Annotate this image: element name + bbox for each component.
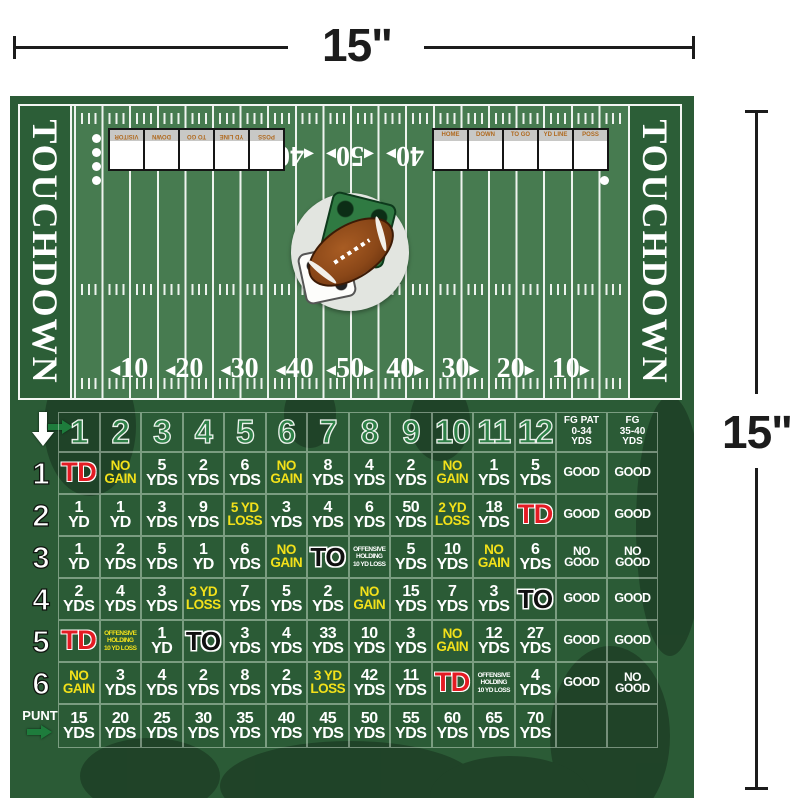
result-line: YDS: [146, 599, 177, 614]
result-line: 42: [361, 668, 378, 683]
result-line: GOOD: [563, 593, 599, 605]
result-cell: 3 YDLOSS: [183, 578, 225, 620]
result-cell: 60YDS: [432, 704, 474, 748]
dice-row-label: 6: [26, 666, 56, 702]
result-cell: 2YDS: [307, 578, 349, 620]
result-cell: 9YDS: [183, 494, 225, 536]
result-line: 8: [324, 458, 332, 473]
result-cell: NOGAIN: [266, 536, 308, 578]
result-cell: 3YDS: [141, 494, 183, 536]
result-line: YDS: [478, 515, 509, 530]
result-cell: NOGOOD: [556, 536, 607, 578]
result-line: YDS: [437, 557, 468, 572]
result-line: TO: [518, 587, 553, 612]
result-line: 27: [527, 626, 544, 641]
result-line: 3: [241, 626, 249, 641]
result-cell: TO: [183, 620, 225, 662]
result-line: YDS: [105, 726, 136, 741]
result-cell: 30YDS: [183, 704, 225, 748]
scorebox-label: DOWN: [145, 130, 178, 141]
result-cell: GOOD: [556, 578, 607, 620]
yard-number-text: 10: [552, 353, 580, 384]
score-table: 123456789101112FG PAT0-34YDSFG35-40YDSTD…: [58, 412, 658, 748]
result-line: 5: [282, 584, 290, 599]
result-line: YDS: [312, 726, 343, 741]
result-cell: NOGAIN: [432, 452, 474, 494]
result-cell: 6YDS: [224, 536, 266, 578]
result-cell: 3YDS: [100, 662, 142, 704]
quarter-dot: [92, 134, 101, 143]
result-line: 3: [158, 584, 166, 599]
result-cell: 1YD: [58, 494, 100, 536]
yard-number-text: 30: [231, 353, 259, 384]
result-line: 1: [75, 500, 83, 515]
result-cell: 2YDS: [183, 662, 225, 704]
result-line: 8: [241, 668, 249, 683]
result-cell: 6YDS: [349, 494, 391, 536]
yard-arrow-left: ◀: [364, 146, 374, 161]
result-line: TD: [435, 670, 470, 696]
result-line: 30: [195, 711, 212, 726]
result-line: 1: [116, 500, 124, 515]
result-line: 6: [241, 458, 249, 473]
result-cell: TD: [58, 452, 100, 494]
result-cell: 1YD: [183, 536, 225, 578]
top-dimension-tick-left: [13, 36, 16, 59]
result-line: YDS: [354, 683, 385, 698]
result-cell: NOGAIN: [432, 620, 474, 662]
result-cell: GOOD: [607, 452, 658, 494]
write-in-scorebox: YD LINE: [537, 128, 574, 171]
result-line: YDS: [105, 557, 136, 572]
result-line: 7: [241, 584, 249, 599]
result-cell: 5YDS: [266, 578, 308, 620]
result-line: 3: [158, 500, 166, 515]
result-cell: 50YDS: [349, 704, 391, 748]
column-header: 11: [473, 412, 515, 452]
write-in-scorebox: HOME: [432, 128, 469, 171]
result-line: YDS: [437, 599, 468, 614]
fg-column-header: FG35-40YDS: [607, 412, 658, 452]
result-cell: 18YDS: [473, 494, 515, 536]
football-field: TOUCHDOWN TOUCHDOWN ◀40◀50▶40▶ ◀10◀20◀30…: [18, 104, 682, 400]
result-line: YDS: [395, 599, 426, 614]
result-line: 3: [490, 584, 498, 599]
endzone-right: TOUCHDOWN: [628, 104, 682, 400]
quarter-dot: [600, 176, 609, 185]
result-line: GAIN: [436, 641, 468, 654]
result-cell: 25YDS: [141, 704, 183, 748]
dice-football-logo: [291, 193, 409, 311]
result-line: TD: [61, 628, 96, 654]
result-line: 5: [158, 542, 166, 557]
write-in-scorebox: YD LINE: [213, 128, 250, 171]
column-header: 10: [432, 412, 474, 452]
result-cell: 8YDS: [224, 662, 266, 704]
result-line: LOSS: [435, 515, 470, 528]
result-line: GAIN: [63, 683, 95, 696]
result-line: 33: [319, 626, 336, 641]
result-cell: 4YDS: [100, 578, 142, 620]
yard-number: 10▶: [552, 354, 590, 386]
result-cell: 4YDS: [307, 494, 349, 536]
punt-row-header: PUNT: [22, 708, 58, 739]
result-cell: OFFENSIVEHOLDING10 YD LOSS: [473, 662, 515, 704]
result-line: YDS: [188, 726, 219, 741]
column-header-number: 12: [518, 415, 553, 449]
result-line: 45: [319, 711, 336, 726]
result-line: YDS: [229, 599, 260, 614]
result-line: 6: [531, 542, 539, 557]
result-line: YDS: [312, 473, 343, 488]
result-cell: NOGAIN: [266, 452, 308, 494]
result-line: YDS: [229, 641, 260, 656]
top-dimension-tick-right: [692, 36, 695, 59]
column-header: 3: [141, 412, 183, 452]
dice-row-label: 4: [26, 582, 56, 618]
product-image: { "dimensions": { "width_label": "15\"",…: [0, 0, 800, 800]
result-line: YDS: [105, 599, 136, 614]
yard-arrow-right: ▶: [580, 363, 590, 378]
quarter-dot: [92, 176, 101, 185]
result-line: GAIN: [104, 473, 136, 486]
result-cell: NOGAIN: [473, 536, 515, 578]
yard-arrow-left: ◀: [110, 363, 120, 378]
quarter-dots-left: [92, 134, 101, 185]
result-line: 10: [444, 542, 461, 557]
result-line: 9: [199, 500, 207, 515]
result-line: GOOD: [563, 635, 599, 647]
yard-number-text: 50: [336, 353, 364, 384]
result-line: 6: [365, 500, 373, 515]
yard-arrow-right: ▶: [364, 363, 374, 378]
result-cell: 2YDS: [390, 452, 432, 494]
result-cell: NOGAIN: [58, 662, 100, 704]
result-cell: 7YDS: [224, 578, 266, 620]
result-cell: 70YDS: [515, 704, 557, 748]
result-line: YDS: [520, 557, 551, 572]
result-line: 12: [485, 626, 502, 641]
column-header: 4: [183, 412, 225, 452]
yard-number-text: 40: [396, 140, 424, 171]
result-line: GOOD: [614, 635, 650, 647]
result-cell: 10YDS: [432, 536, 474, 578]
scorebox-label: YD LINE: [539, 130, 572, 141]
result-cell: OFFENSIVEHOLDING10 YD LOSS: [349, 536, 391, 578]
result-line: 10 YD LOSS: [104, 645, 136, 652]
result-line: HOLDING: [356, 553, 382, 560]
column-header: 1: [58, 412, 100, 452]
scorebox-label: POSS: [574, 130, 607, 141]
result-line: OFFENSIVE: [353, 546, 385, 553]
yard-arrow-right: ▶: [326, 146, 336, 161]
yard-number-text: 30: [441, 353, 469, 384]
punt-label: PUNT: [22, 708, 58, 723]
yard-number: 30▶: [441, 354, 479, 386]
yard-number: ◀20: [165, 354, 203, 386]
scorebox-group-left: VISITORDOWNTO GOYD LINEPOSS: [108, 128, 285, 171]
result-line: 1: [158, 626, 166, 641]
result-line: YDS: [520, 641, 551, 656]
column-header-number: 4: [195, 415, 212, 449]
result-cell: 20YDS: [100, 704, 142, 748]
fg-header-line: YDS: [571, 437, 592, 448]
yard-number-text: 20: [497, 353, 525, 384]
game-board: TOUCHDOWN TOUCHDOWN ◀40◀50▶40▶ ◀10◀20◀30…: [10, 96, 694, 798]
column-header-number: 10: [435, 415, 470, 449]
result-cell: 27YDS: [515, 620, 557, 662]
result-line: 10 YD LOSS: [353, 561, 385, 568]
result-line: YDS: [229, 557, 260, 572]
result-cell: GOOD: [607, 620, 658, 662]
result-line: 35: [236, 711, 253, 726]
result-line: 2: [324, 584, 332, 599]
result-line: YD: [110, 515, 131, 530]
height-dimension-label: 15": [722, 405, 792, 459]
result-line: 1: [490, 458, 498, 473]
result-line: TD: [518, 502, 553, 528]
column-header-number: 1: [70, 415, 87, 449]
result-line: GOOD: [614, 593, 650, 605]
result-cell: 6YDS: [224, 452, 266, 494]
result-line: 2: [116, 542, 124, 557]
write-in-scorebox: DOWN: [143, 128, 180, 171]
scorebox-label: POSS: [250, 130, 283, 141]
result-cell: 3YDS: [141, 578, 183, 620]
fg-column-header: FG PAT0-34YDS: [556, 412, 607, 452]
column-header-number: 7: [319, 415, 336, 449]
result-line: GAIN: [270, 473, 302, 486]
result-cell: TD: [432, 662, 474, 704]
result-line: TD: [61, 460, 96, 486]
result-cell: 1YD: [58, 536, 100, 578]
result-line: 4: [116, 584, 124, 599]
result-cell: [607, 704, 658, 748]
column-header-number: 11: [477, 415, 510, 449]
result-line: YDS: [146, 515, 177, 530]
fg-header-line: YDS: [622, 437, 643, 448]
result-line: GOOD: [614, 467, 650, 479]
result-line: GAIN: [478, 557, 510, 570]
right-dimension-tick-bottom: [745, 787, 768, 790]
result-line: GOOD: [615, 557, 650, 568]
write-in-scorebox: VISITOR: [108, 128, 145, 171]
result-cell: 65YDS: [473, 704, 515, 748]
result-cell: 15YDS: [390, 578, 432, 620]
result-cell: 5YDS: [515, 452, 557, 494]
result-line: YDS: [520, 726, 551, 741]
result-cell: 1YD: [141, 620, 183, 662]
result-line: 11: [403, 668, 419, 683]
write-in-scorebox: TO GO: [502, 128, 539, 171]
column-header-number: 5: [236, 415, 253, 449]
write-in-scorebox: DOWN: [467, 128, 504, 171]
result-cell: 11YDS: [390, 662, 432, 704]
result-cell: 45YDS: [307, 704, 349, 748]
result-line: 5: [158, 458, 166, 473]
yard-number: 20▶: [497, 354, 535, 386]
result-cell: GOOD: [607, 494, 658, 536]
scorebox-group-right: HOMEDOWNTO GOYD LINEPOSS: [432, 128, 609, 171]
result-line: YDS: [271, 726, 302, 741]
result-line: LOSS: [227, 515, 262, 528]
column-header-number: 8: [361, 415, 378, 449]
result-line: YDS: [188, 515, 219, 530]
result-line: 2: [407, 458, 415, 473]
column-header: 5: [224, 412, 266, 452]
yard-arrow-right: ▶: [525, 363, 535, 378]
scorebox-label: TO GO: [180, 130, 213, 141]
result-cell: NOGAIN: [349, 578, 391, 620]
result-line: YDS: [188, 683, 219, 698]
result-cell: GOOD: [556, 620, 607, 662]
result-line: OFFENSIVE: [478, 672, 510, 679]
result-line: 3: [407, 626, 415, 641]
scorebox-label: DOWN: [469, 130, 502, 141]
right-dimension-tick-top: [745, 110, 768, 113]
result-line: YD: [193, 557, 214, 572]
result-cell: 1YD: [100, 494, 142, 536]
result-line: 15: [402, 584, 419, 599]
punt-arrow-icon: [27, 725, 53, 739]
column-header-number: 9: [402, 415, 419, 449]
result-line: YDS: [437, 726, 468, 741]
yard-number: 40▶: [386, 354, 424, 386]
result-cell: 2YDS: [58, 578, 100, 620]
result-cell: 2 YDLOSS: [432, 494, 474, 536]
result-cell: 5YDS: [141, 536, 183, 578]
result-cell: 50YDS: [390, 494, 432, 536]
yard-number: ◀10: [110, 354, 148, 386]
result-line: YDS: [229, 473, 260, 488]
result-cell: 3 YDLOSS: [307, 662, 349, 704]
result-line: GAIN: [353, 599, 385, 612]
result-line: YDS: [271, 683, 302, 698]
result-cell: NOGAIN: [100, 452, 142, 494]
result-cell: 12YDS: [473, 620, 515, 662]
result-line: YDS: [271, 641, 302, 656]
result-line: YDS: [146, 473, 177, 488]
result-cell: 3YDS: [473, 578, 515, 620]
result-line: YDS: [271, 599, 302, 614]
result-cell: 42YDS: [349, 662, 391, 704]
result-cell: 3YDS: [266, 494, 308, 536]
result-cell: 2YDS: [100, 536, 142, 578]
result-line: GOOD: [564, 557, 599, 568]
result-cell: 2YDS: [183, 452, 225, 494]
result-line: 60: [444, 711, 461, 726]
result-line: 25: [153, 711, 170, 726]
result-line: YDS: [312, 515, 343, 530]
result-line: YDS: [478, 726, 509, 741]
result-cell: GOOD: [556, 494, 607, 536]
yard-numbers-bottom: ◀10◀20◀30◀40◀50▶40▶30▶20▶10▶: [74, 354, 626, 384]
result-cell: TO: [307, 536, 349, 578]
result-line: YDS: [354, 473, 385, 488]
result-line: GOOD: [614, 509, 650, 521]
result-line: 2: [282, 668, 290, 683]
yard-number: ◀40: [276, 354, 314, 386]
result-cell: 35YDS: [224, 704, 266, 748]
result-cell: 55YDS: [390, 704, 432, 748]
result-line: 4: [531, 668, 539, 683]
column-header-number: 6: [278, 415, 295, 449]
result-line: GOOD: [615, 683, 650, 694]
column-header-number: 2: [112, 415, 129, 449]
result-line: YDS: [395, 557, 426, 572]
yard-arrow-right: ▶: [414, 363, 424, 378]
result-cell: NOGOOD: [607, 536, 658, 578]
result-line: 70: [527, 711, 544, 726]
yard-arrow-right: ▶: [469, 363, 479, 378]
quarter-dot: [92, 148, 101, 157]
result-cell: 1YDS: [473, 452, 515, 494]
result-cell: [556, 704, 607, 748]
football-laces: [333, 238, 370, 264]
result-cell: TD: [515, 494, 557, 536]
result-cell: NOGOOD: [607, 662, 658, 704]
yard-arrow-left: ◀: [276, 363, 286, 378]
result-line: 4: [282, 626, 290, 641]
yard-number-text: 20: [175, 353, 203, 384]
result-cell: 15YDS: [58, 704, 100, 748]
result-line: YD: [68, 557, 89, 572]
column-header: 2: [100, 412, 142, 452]
scorebox-label: TO GO: [504, 130, 537, 141]
quarter-dot: [92, 162, 101, 171]
result-cell: 33YDS: [307, 620, 349, 662]
result-line: 50: [402, 500, 419, 515]
result-line: HOLDING: [107, 637, 133, 644]
column-header: 12: [515, 412, 557, 452]
result-line: GAIN: [436, 473, 468, 486]
result-line: 10: [361, 626, 378, 641]
yard-number-text: 10: [120, 353, 148, 384]
result-line: YDS: [63, 599, 94, 614]
top-dimension-line-right: [424, 46, 695, 49]
result-line: YDS: [395, 726, 426, 741]
result-cell: 3YDS: [390, 620, 432, 662]
scorebox-label: YD LINE: [215, 130, 248, 141]
result-cell: 2YDS: [266, 662, 308, 704]
result-line: 4: [158, 668, 166, 683]
result-line: 2: [199, 668, 207, 683]
result-cell: GOOD: [607, 578, 658, 620]
result-line: YD: [68, 515, 89, 530]
dice-row-label: 2: [26, 498, 56, 534]
result-line: YDS: [146, 557, 177, 572]
result-line: 2: [199, 458, 207, 473]
result-line: YDS: [229, 683, 260, 698]
dice-row-label: 5: [26, 624, 56, 660]
result-line: 6: [241, 542, 249, 557]
yard-number-text: 40: [286, 353, 314, 384]
right-dimension-line-top: [755, 110, 758, 394]
yard-arrow-left: ◀: [326, 363, 336, 378]
scorebox-label: HOME: [434, 130, 467, 141]
result-cell: 10YDS: [349, 620, 391, 662]
result-line: 2: [75, 584, 83, 599]
result-line: YDS: [271, 515, 302, 530]
result-line: GOOD: [563, 467, 599, 479]
touchdown-text-left: TOUCHDOWN: [24, 119, 66, 384]
result-cell: 5YDS: [390, 536, 432, 578]
write-in-scorebox: TO GO: [178, 128, 215, 171]
result-cell: 8YDS: [307, 452, 349, 494]
result-line: YDS: [354, 515, 385, 530]
result-line: 4: [324, 500, 332, 515]
right-dimension-line-bottom: [755, 468, 758, 790]
